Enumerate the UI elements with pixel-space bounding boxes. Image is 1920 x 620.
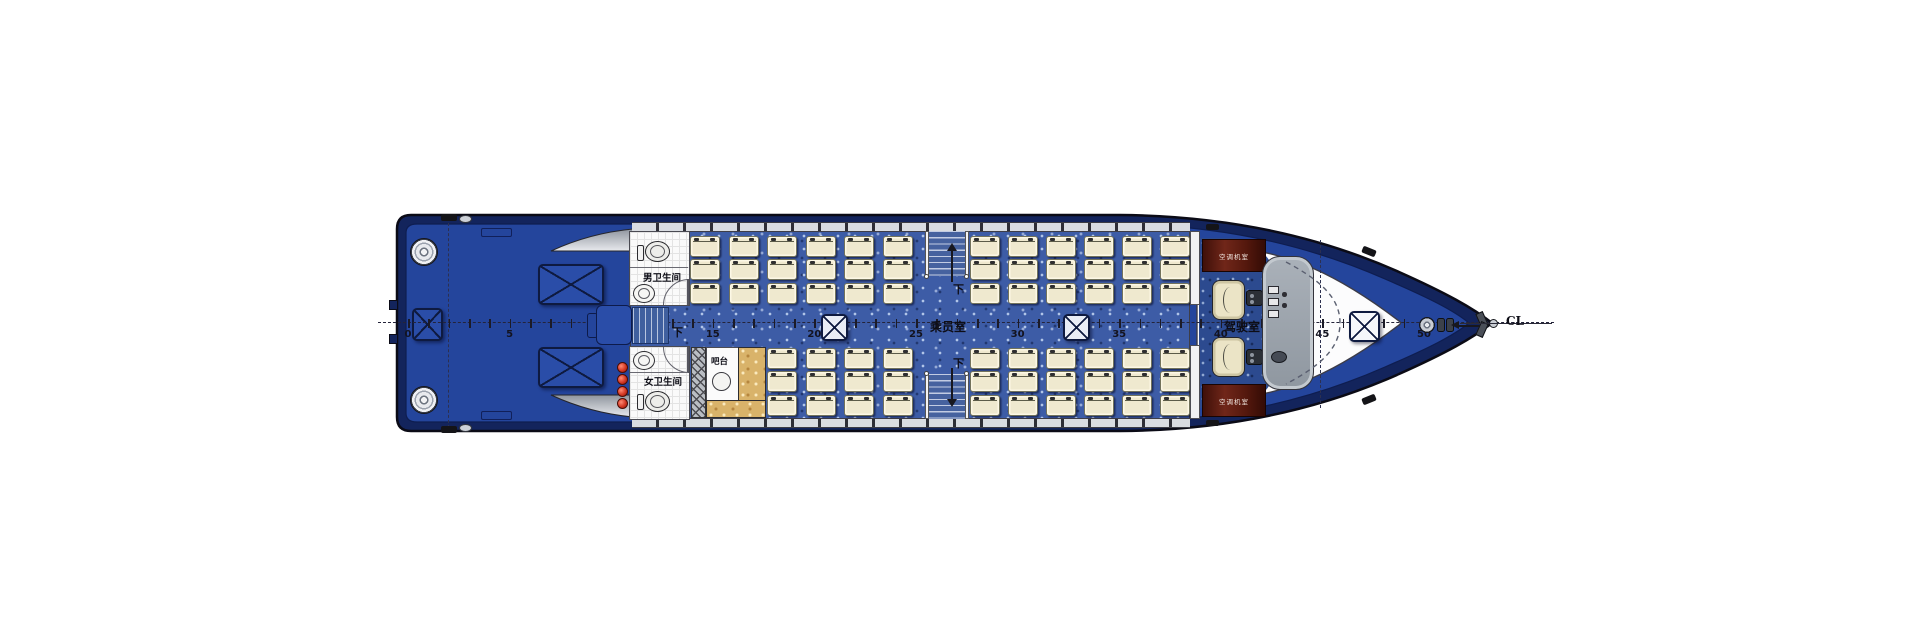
frame-tick [997, 319, 999, 328]
stair-newel [964, 274, 969, 279]
toilet-bowl-icon [645, 241, 670, 262]
passenger-seat [767, 371, 797, 392]
passenger-seat [844, 371, 874, 392]
passenger-seat [1008, 395, 1038, 416]
passenger-seat [806, 259, 836, 280]
console-knob [1282, 303, 1287, 308]
ac-cabinet-port: 空调机室 [1202, 239, 1266, 272]
passenger-seat [806, 371, 836, 392]
toilet-tank-icon [637, 394, 644, 410]
frame-tick [713, 319, 715, 328]
frame-tick [449, 319, 451, 328]
aisle-hatch-aft [821, 314, 848, 341]
instrument-panel [1268, 286, 1279, 294]
passenger-seat [1008, 283, 1038, 304]
console-knob [1282, 292, 1287, 297]
passenger-seat [1046, 283, 1076, 304]
passenger-seat [1084, 259, 1114, 280]
passenger-seat [767, 236, 797, 257]
passenger-seat [970, 259, 1000, 280]
frame-tick [1058, 319, 1060, 328]
passenger-seat [1122, 395, 1152, 416]
passenger-seat [1122, 348, 1152, 369]
ac-cabinet-label: 空调机室 [1219, 396, 1249, 406]
passenger-seat [883, 259, 913, 280]
passenger-seat [970, 395, 1000, 416]
passenger-seat [690, 236, 720, 257]
passenger-seat [729, 259, 759, 280]
throttle-pod-port [1246, 290, 1263, 306]
passenger-seat [767, 395, 797, 416]
stern-cleat-port [441, 214, 457, 221]
frame-tick [1180, 319, 1182, 328]
frame-number: 5 [499, 329, 521, 340]
passenger-seat [1122, 236, 1152, 257]
stern-cleat-starboard [441, 426, 457, 433]
passenger-seat [883, 371, 913, 392]
wheelhouse-bulkhead-port [1190, 231, 1200, 305]
toilet-bowl-icon [645, 391, 670, 412]
wash-basin-icon [633, 351, 655, 370]
passenger-seat [1084, 283, 1114, 304]
frame-number: 30 [1007, 329, 1029, 340]
frame-tick [896, 319, 898, 328]
passenger-seat [1160, 283, 1190, 304]
stair-rail [925, 373, 929, 419]
frame-tick [408, 319, 410, 328]
wash-basin-icon [633, 284, 655, 303]
mooring-bollard-port [410, 238, 438, 266]
passenger-seat [970, 371, 1000, 392]
passenger-seat [883, 395, 913, 416]
transom-fitting-upper [389, 300, 398, 310]
wheelhouse-label: 驾驶室 [1224, 318, 1260, 335]
stair-down-label-aft: 下 [672, 324, 683, 340]
passenger-seat [1160, 348, 1190, 369]
instrument-panel [1268, 310, 1279, 318]
passenger-seat [1008, 236, 1038, 257]
door-leaf [687, 279, 689, 305]
toilet-tank-icon [637, 245, 644, 261]
passenger-seat [1122, 283, 1152, 304]
stairway-down-aft [632, 307, 669, 344]
frame-tick [692, 319, 694, 328]
stern-chock-starboard [459, 424, 472, 432]
frame-tick [977, 319, 979, 328]
stair-arrow-head [947, 243, 957, 251]
passenger-seat [1160, 395, 1190, 416]
passenger-seat [1008, 371, 1038, 392]
stair-arrow-head [947, 399, 957, 407]
frame-tick [1200, 319, 1202, 328]
crew-chair-port [1212, 280, 1245, 320]
stem-fitting [1489, 319, 1498, 328]
frame-tick [1119, 319, 1121, 328]
passenger-seat [729, 283, 759, 304]
companionway-landing [596, 305, 632, 345]
fire-extinguisher-icon [617, 386, 628, 397]
towline-arrow-head [1451, 321, 1459, 329]
crew-chair-starboard [1212, 337, 1245, 377]
passenger-seat [1084, 371, 1114, 392]
passenger-seat [883, 236, 913, 257]
midship-cleat-starboard [1206, 420, 1219, 426]
bar-label: 吧台 [711, 355, 728, 367]
deck-plan-canvas: 05101520253035404550 男卫生间 女卫生间 下 吧台 [0, 0, 1920, 620]
stair-direction-arrow [951, 368, 953, 402]
console-dashed-arc [1280, 255, 1350, 395]
capstan-icon [1419, 317, 1435, 333]
stair-down-label-port: 下 [953, 281, 964, 297]
stairway-down-port [929, 231, 965, 276]
frame-tick [875, 319, 877, 328]
frame-tick [1404, 319, 1406, 328]
stair-rail [925, 231, 929, 277]
passenger-seat [844, 236, 874, 257]
frame-tick [794, 319, 796, 328]
passenger-seat [767, 348, 797, 369]
stair-newel [964, 371, 969, 376]
passenger-seat [1046, 395, 1076, 416]
stair-newel [924, 371, 929, 376]
frame-number: 15 [702, 329, 724, 340]
passenger-seat [844, 259, 874, 280]
stairway-down-starboard [929, 374, 965, 419]
ac-cabinet-label: 空调机室 [1219, 251, 1249, 261]
passenger-seat [883, 283, 913, 304]
frame-number: 0 [397, 329, 419, 340]
passenger-seat [970, 348, 1000, 369]
passenger-seat [844, 348, 874, 369]
stern-hatch-starboard [538, 347, 604, 388]
frame-tick [1018, 319, 1020, 328]
bar-counter-return [706, 400, 766, 418]
passenger-seat [729, 236, 759, 257]
aisle-hatch-fwd [1063, 314, 1090, 341]
passenger-seat [806, 283, 836, 304]
passenger-seat [1160, 236, 1190, 257]
passenger-seat [883, 348, 913, 369]
stair-down-label-starboard: 下 [953, 355, 964, 371]
toilet-partition [630, 267, 688, 268]
fire-extinguisher-icon [617, 362, 628, 373]
passenger-seat [1046, 236, 1076, 257]
stair-newel [924, 274, 929, 279]
frame-tick [530, 319, 532, 328]
ac-cabinet-starboard: 空调机室 [1202, 384, 1266, 417]
frame-tick [1099, 319, 1101, 328]
midship-cleat-port [1206, 224, 1219, 230]
throttle-pod-starboard [1246, 349, 1263, 365]
passenger-seat [1160, 259, 1190, 280]
instrument-panel [1268, 298, 1279, 306]
mooring-bollard-starboard [410, 386, 438, 414]
frame-tick [916, 319, 918, 328]
passenger-seat [806, 236, 836, 257]
compass-binnacle [1271, 351, 1287, 363]
frame-tick [774, 319, 776, 328]
passenger-seat [767, 283, 797, 304]
passenger-seat [844, 395, 874, 416]
passenger-seat [806, 395, 836, 416]
frame-tick [814, 319, 816, 328]
bow-bitt [1437, 318, 1445, 332]
women-toilet-room: 女卫生间 [629, 346, 690, 420]
frame-tick [510, 319, 512, 328]
women-toilet-label: 女卫生间 [644, 374, 682, 388]
passenger-seat [1008, 348, 1038, 369]
passenger-seat [1046, 348, 1076, 369]
fire-extinguisher-icon [617, 398, 628, 409]
passenger-seat [767, 259, 797, 280]
frame-tick [753, 319, 755, 328]
frame-tick [1160, 319, 1162, 328]
frame-tick [1038, 319, 1040, 328]
stair-rail [965, 231, 969, 277]
frame-tick [855, 319, 857, 328]
centerline-label: CL [1506, 314, 1524, 328]
side-deck-starboard [632, 418, 1190, 428]
passenger-seat [1160, 371, 1190, 392]
passenger-seat [1046, 371, 1076, 392]
frame-tick [1383, 319, 1385, 328]
passenger-seat [844, 283, 874, 304]
stern-chock-port [459, 215, 472, 223]
frame-tick [733, 319, 735, 328]
frame-tick [571, 319, 573, 328]
passenger-seat [1084, 348, 1114, 369]
passenger-seat [690, 259, 720, 280]
passenger-seat [1046, 259, 1076, 280]
passenger-seat [1122, 259, 1152, 280]
bar-stool [712, 372, 731, 391]
bulwark-recess-starboard [481, 411, 512, 420]
frame-tick [469, 319, 471, 328]
bulwark-recess-port [481, 228, 512, 237]
passenger-seat [690, 283, 720, 304]
foredeck-hatch [1349, 311, 1380, 342]
toilet-partition [630, 372, 688, 373]
passenger-seat [1122, 371, 1152, 392]
passenger-cabin-label: 乘员室 [930, 318, 966, 335]
passenger-seat [970, 236, 1000, 257]
fire-extinguisher-icon [617, 374, 628, 385]
stair-direction-arrow [951, 248, 953, 282]
frame-number: 25 [905, 329, 927, 340]
passenger-seat [806, 348, 836, 369]
frame-tick [489, 319, 491, 328]
stair-rail [965, 373, 969, 419]
passenger-seat [970, 283, 1000, 304]
passenger-seat [1084, 395, 1114, 416]
wheelhouse-bulkhead-starboard [1190, 345, 1200, 419]
passenger-seat [1084, 236, 1114, 257]
door-leaf [687, 347, 689, 373]
frame-tick [428, 319, 430, 328]
frame-number: 35 [1108, 329, 1130, 340]
passenger-seat [1008, 259, 1038, 280]
frame-tick [550, 319, 552, 328]
stern-hatch-port [538, 264, 604, 305]
frame-tick [1140, 319, 1142, 328]
men-toilet-room: 男卫生间 [629, 231, 690, 306]
side-ladder [691, 347, 706, 418]
